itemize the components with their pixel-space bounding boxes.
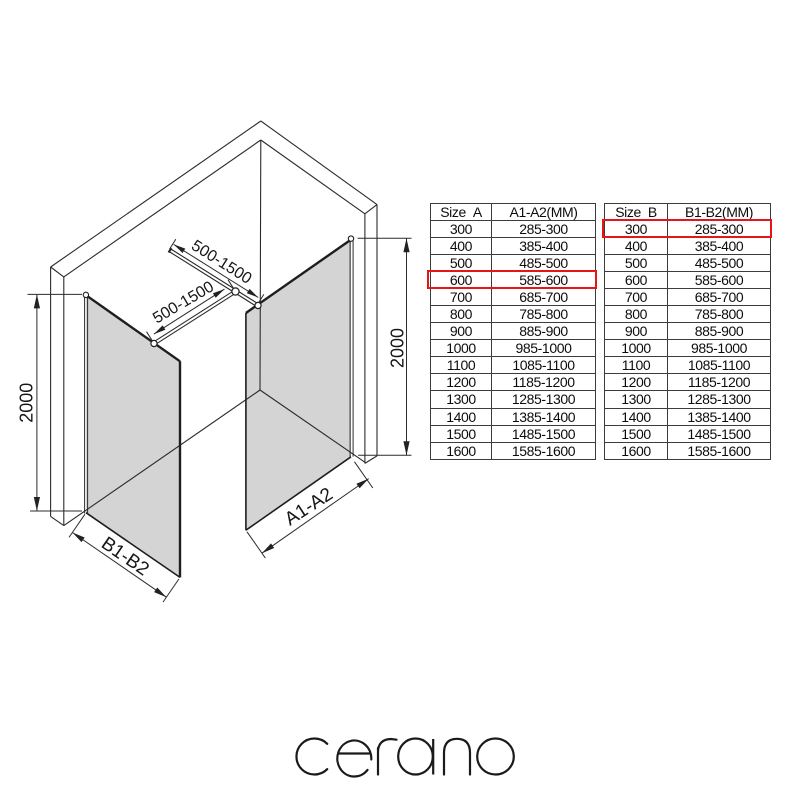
svg-text:500-1500: 500-1500 [150, 278, 217, 327]
svg-text:2000: 2000 [16, 383, 36, 423]
svg-text:2000: 2000 [387, 328, 407, 368]
